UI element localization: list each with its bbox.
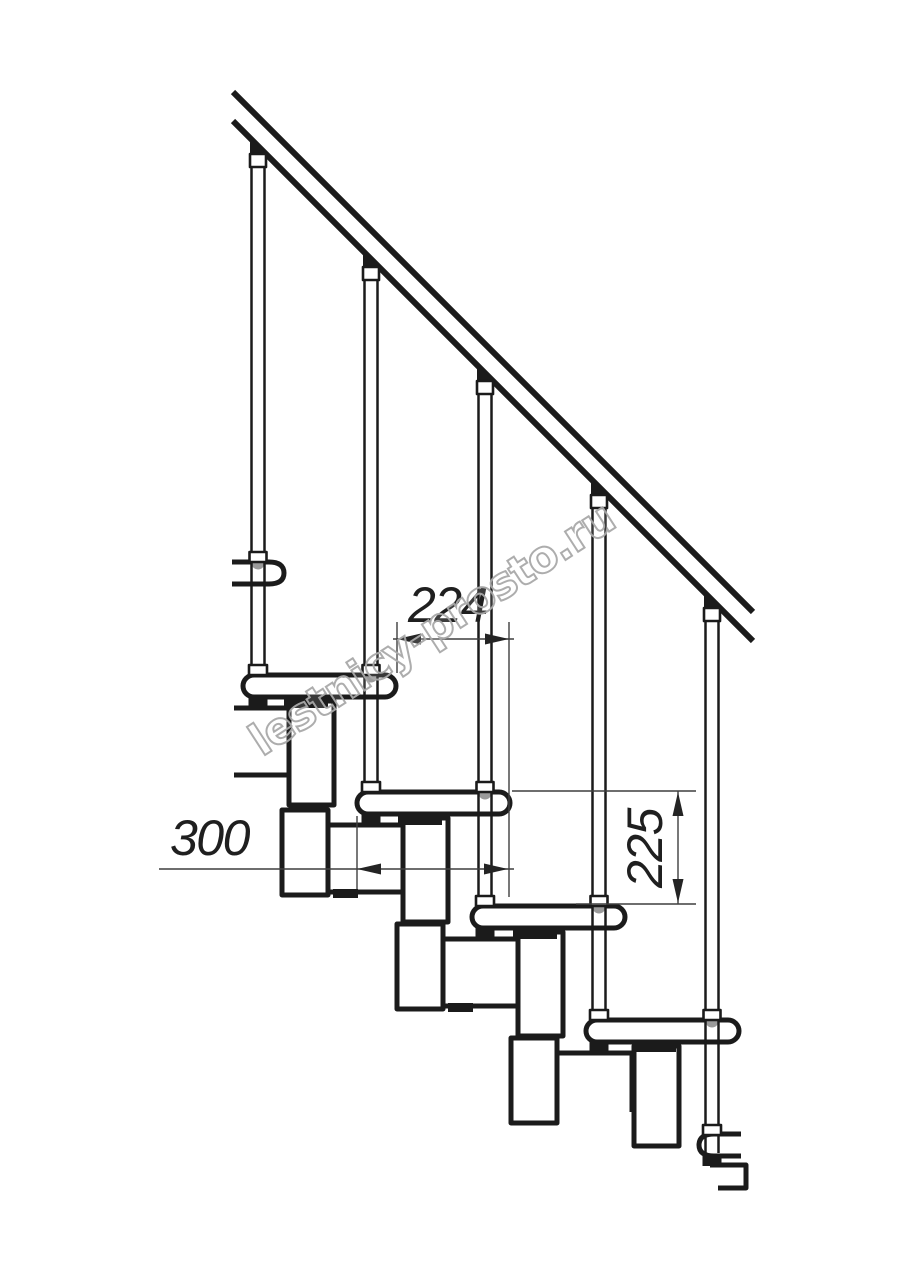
- support-connector: [403, 818, 448, 922]
- support-module: [328, 825, 403, 892]
- baluster-flange: [477, 782, 494, 792]
- module-clamp: [333, 889, 358, 898]
- bolt-foot: [476, 896, 494, 906]
- bolt-nut: [362, 813, 381, 823]
- bolt-nut: [590, 1041, 609, 1051]
- bolt-foot: [249, 665, 267, 675]
- dimension-label-300: 300: [170, 810, 251, 866]
- bolt-foot: [590, 1010, 608, 1020]
- support-module-lower: [511, 1038, 557, 1123]
- bolt-nut: [703, 1156, 722, 1166]
- support-module-lower: [282, 810, 328, 895]
- bolt-foot: [362, 782, 380, 792]
- staircase-technical-drawing: 224 300 225 lestnicy-prosto.ru: [0, 0, 914, 1280]
- support-module: [443, 939, 518, 1006]
- bolt-nut: [249, 696, 268, 706]
- bolt-nut: [476, 927, 495, 937]
- baluster-flange: [704, 1010, 721, 1020]
- support-module-lower: [397, 924, 443, 1009]
- bolt-foot: [703, 1125, 721, 1135]
- dimension-label-225: 225: [617, 807, 673, 889]
- module-clamp: [448, 1003, 473, 1012]
- baluster-collar: [250, 154, 266, 167]
- baluster-collar: [704, 608, 720, 621]
- baluster-collar: [363, 267, 379, 280]
- baluster-flange: [250, 552, 267, 562]
- drawing-canvas: 224 300 225 lestnicy-prosto.ru: [0, 0, 914, 1280]
- support-connector: [634, 1046, 679, 1146]
- baluster-collar: [477, 381, 493, 394]
- support-connector: [518, 932, 563, 1036]
